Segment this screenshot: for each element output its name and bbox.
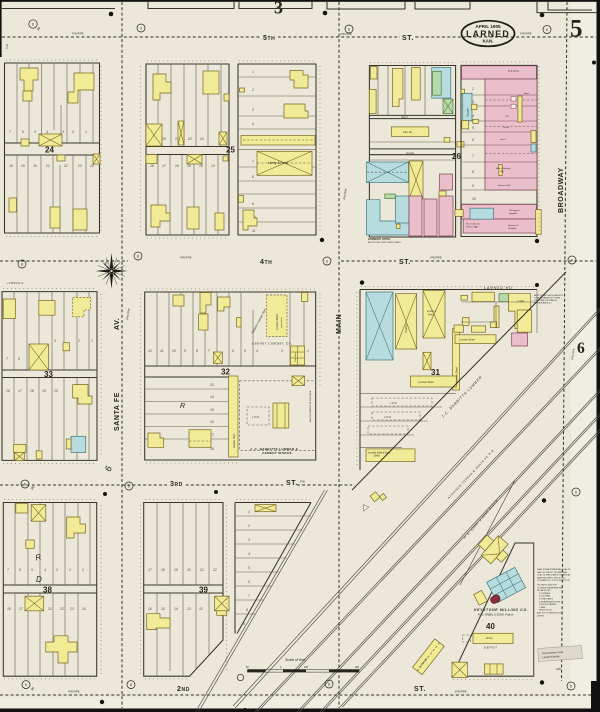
svg-text:6"W: 6"W (300, 480, 305, 484)
svg-text:6: 6 (546, 28, 548, 32)
svg-text:7: 7 (9, 130, 11, 134)
svg-text:2: 2 (251, 88, 254, 92)
svg-text:15: 15 (161, 607, 165, 611)
svg-text:7: 7 (252, 160, 254, 164)
svg-text:4: 4 (256, 349, 258, 353)
svg-text:5TH: 5TH (263, 35, 275, 42)
svg-text:4: 4 (44, 568, 46, 572)
svg-text:3: 3 (281, 349, 283, 353)
svg-text:26: 26 (452, 152, 461, 161)
svg-text:22: 22 (59, 607, 64, 611)
svg-text:2: 2 (68, 568, 71, 572)
svg-text:9: 9 (243, 622, 245, 626)
svg-text:6"W PIPE: 6"W PIPE (520, 32, 532, 36)
svg-text:3: 3 (252, 108, 254, 112)
svg-text:ST.: ST. (402, 35, 414, 42)
svg-text:DEPOT: DEPOT (484, 646, 498, 650)
svg-text:100: 100 (556, 667, 561, 671)
svg-text:8: 8 (246, 608, 248, 612)
svg-text:18: 18 (150, 164, 154, 168)
svg-text:6: 6 (348, 27, 350, 31)
svg-text:40: 40 (486, 622, 495, 631)
svg-text:2 INDEPENDENT HOSE: 2 INDEPENDENT HOSE (539, 601, 561, 603)
svg-text:25: 25 (226, 146, 235, 155)
svg-text:1: 1 (91, 339, 93, 343)
svg-text:15: 15 (210, 408, 214, 412)
svg-text:WHAT STEAM POWER AND COAL OIL: WHAT STEAM POWER AND COAL OIL (537, 568, 571, 571)
svg-text:AVE. 40 FT. STREETS 80 100: AVE. 40 FT. STREETS 80 100 (537, 612, 563, 615)
svg-text:W Ho.: W Ho. (486, 636, 493, 640)
svg-text:4"W PIPE: 4"W PIPE (340, 32, 352, 36)
svg-text:17: 17 (19, 607, 23, 611)
svg-text:AV.: AV. (114, 318, 121, 330)
svg-text:19: 19 (42, 389, 46, 393)
svg-text:5: 5 (248, 566, 250, 570)
svg-text:22: 22 (63, 164, 68, 168)
svg-text:6: 6 (232, 349, 234, 353)
svg-text:KEYSTONE MILLING CO.: KEYSTONE MILLING CO. (474, 608, 528, 612)
svg-text:+ 4"W 10 Fe. P.: + 4"W 10 Fe. P. (7, 282, 24, 285)
svg-text:17: 17 (148, 568, 152, 572)
svg-text:2: 2 (247, 524, 250, 528)
svg-text:1 DOUBLE STEAM FIRE ENG.: 1 DOUBLE STEAM FIRE ENG. (537, 586, 564, 589)
svg-text:2 CISTERNS: 2 CISTERNS (539, 593, 551, 595)
svg-text:COAL OIL WELLS BRICK STEAM GAS: COAL OIL WELLS BRICK STEAM GAS (537, 574, 571, 577)
svg-text:LOTS AVE B & C P ST 20 ROCK ST: LOTS AVE B & C P ST 20 ROCK ST N (537, 579, 570, 582)
svg-text:Vehicle Mfg: Vehicle Mfg (466, 227, 478, 229)
svg-text:Bolts & Bowling: Bolts & Bowling (496, 167, 511, 170)
svg-text:20: 20 (186, 568, 191, 572)
svg-text:L P M: L P M (252, 415, 259, 419)
svg-text:4: 4 (252, 122, 254, 126)
svg-text:5: 5 (34, 130, 36, 134)
svg-text:4"W PIPE: 4"W PIPE (68, 690, 80, 694)
svg-text:3: 3 (472, 100, 474, 104)
svg-text:200: 200 (355, 666, 360, 669)
svg-text:24: 24 (45, 146, 54, 155)
svg-text:14: 14 (174, 607, 178, 611)
svg-text:1: 1 (307, 349, 309, 353)
svg-text:(stone): (stone) (406, 151, 414, 155)
svg-text:O.K & Co.: O.K & Co. (508, 69, 520, 73)
svg-text:10: 10 (172, 349, 176, 353)
svg-text:2ND: 2ND (177, 686, 190, 693)
svg-text:5: 5 (472, 126, 474, 130)
svg-text:GAS FIRE LIMITS: ORD. NO 234: GAS FIRE LIMITS: ORD. NO 234 (537, 576, 565, 579)
svg-text:(barn): (barn) (401, 115, 408, 119)
svg-text:open frame: open frame (281, 316, 283, 328)
svg-text:2: 2 (71, 130, 74, 134)
svg-text:1 HOSE CARTS: 1 HOSE CARTS (539, 598, 554, 601)
svg-text:100: 100 (304, 666, 309, 669)
svg-text:11: 11 (252, 229, 256, 233)
svg-text:L P M: L P M (390, 401, 397, 405)
svg-text:3: 3 (56, 568, 58, 572)
svg-text:Saddlery: Saddlery (508, 228, 518, 230)
svg-text:Lanner Lumber Co.: Lanner Lumber Co. (252, 342, 293, 346)
svg-text:38: 38 (43, 586, 52, 595)
svg-text:ST.: ST. (414, 686, 426, 693)
svg-text:P.O.: P.O. (505, 116, 509, 118)
svg-text:KAN.: KAN. (483, 39, 494, 44)
svg-text:8: 8 (196, 349, 198, 353)
svg-text:BILLON CEMENT BLOCK WKS: BILLON CEMENT BLOCK WKS (310, 390, 312, 422)
svg-text:Trading: Trading (404, 324, 408, 333)
svg-text:1 HOOK & LADDER: 1 HOOK & LADDER (539, 603, 557, 606)
svg-text:20: 20 (32, 164, 37, 168)
svg-text:6: 6 (577, 340, 585, 357)
svg-text:4: 4 (472, 114, 474, 118)
svg-text:17: 17 (162, 164, 166, 168)
svg-text:Carriage &: Carriage & (509, 210, 520, 212)
svg-text:Carr Ho.: Carr Ho. (403, 130, 413, 134)
svg-text:15: 15 (187, 164, 191, 168)
svg-text:21: 21 (47, 607, 52, 611)
svg-text:14: 14 (199, 164, 203, 168)
svg-text:10: 10 (472, 197, 476, 201)
svg-text:8: 8 (328, 682, 330, 686)
svg-text:3 COLUMNS: 3 COLUMNS (539, 596, 551, 598)
svg-text:3: 3 (54, 339, 56, 343)
svg-text:8: 8 (137, 254, 139, 258)
svg-text:4: 4 (46, 130, 48, 134)
svg-text:4: 4 (248, 552, 250, 556)
svg-text:18: 18 (9, 164, 13, 168)
svg-text:32: 32 (221, 368, 230, 377)
svg-text:BEST STOVES LIGHTS SWELL LAMPS: BEST STOVES LIGHTS SWELL LAMPS (368, 241, 401, 244)
svg-text:14: 14 (210, 395, 214, 399)
svg-text:12: 12 (199, 607, 203, 611)
svg-text:23: 23 (199, 137, 204, 141)
svg-text:Horse Shoe &: Horse Shoe & (466, 224, 480, 226)
svg-text:8: 8 (252, 175, 254, 179)
svg-text:11: 11 (160, 349, 164, 353)
svg-text:Shed: Shed (374, 455, 380, 458)
svg-text:5: 5 (31, 568, 33, 572)
svg-text:Lodge: Lodge (517, 299, 525, 303)
svg-text:9: 9 (252, 202, 254, 206)
svg-text:18: 18 (7, 607, 11, 611)
svg-text:BROADWAY: BROADWAY (558, 167, 565, 213)
svg-text:22: 22 (212, 568, 217, 572)
svg-text:5: 5 (244, 349, 246, 353)
svg-text:8: 8 (130, 683, 132, 687)
svg-text:22: 22 (187, 137, 192, 141)
svg-text:CEMENT WORKS.: CEMENT WORKS. (262, 451, 293, 455)
svg-text:Clo &c: Clo &c (503, 127, 510, 129)
svg-text:3: 3 (140, 26, 142, 30)
svg-text:1 TANK: 1 TANK (539, 606, 546, 609)
svg-text:18: 18 (161, 568, 165, 572)
svg-text:13: 13 (211, 164, 215, 168)
svg-text:3RD: 3RD (170, 481, 183, 488)
svg-text:6: 6 (472, 138, 474, 142)
svg-text:Feed: Feed (428, 313, 434, 317)
svg-text:5: 5 (571, 258, 573, 262)
svg-text:5: 5 (570, 684, 572, 688)
svg-text:2: 2 (471, 87, 474, 91)
svg-text:31: 31 (431, 368, 440, 377)
svg-text:8: 8 (575, 490, 577, 494)
svg-text:6: 6 (248, 580, 250, 584)
svg-text:IT'S LIMITS: 2300 POP.: IT'S LIMITS: 2300 POP. (537, 585, 557, 587)
svg-text:9: 9 (472, 184, 474, 188)
svg-text:Lumber Shed: Lumber Shed (275, 314, 279, 330)
svg-text:4"W PIPE: 4"W PIPE (180, 256, 192, 260)
svg-text:23: 23 (69, 607, 74, 611)
svg-text:6: 6 (18, 357, 20, 361)
svg-text:24: 24 (81, 607, 86, 611)
svg-text:8: 8 (21, 262, 23, 266)
svg-text:GAS. OIL & ELECT. NO MATERIAL: GAS. OIL & ELECT. NO MATERIAL (537, 571, 567, 574)
svg-text:23: 23 (77, 164, 82, 168)
svg-text:18: 18 (30, 389, 34, 393)
svg-text:6: 6 (128, 484, 130, 488)
svg-text:16: 16 (6, 389, 10, 393)
svg-text:WELLS GOOD: WELLS GOOD (539, 610, 552, 612)
svg-text:R: R (180, 403, 185, 410)
svg-text:7: 7 (208, 349, 210, 353)
svg-text:7: 7 (7, 568, 9, 572)
svg-text:4"W PIPE: 4"W PIPE (72, 32, 84, 36)
svg-text:7: 7 (472, 154, 474, 158)
svg-text:1: 1 (248, 510, 250, 514)
svg-text:NO FACILITIES: NO FACILITIES (537, 589, 551, 592)
svg-text:7: 7 (248, 594, 250, 598)
svg-text:1: 1 (85, 130, 87, 134)
svg-text:Scale of feet.: Scale of feet. (285, 658, 306, 662)
svg-text:5: 5 (570, 16, 583, 43)
svg-text:Livery & Feed: Livery & Feed (268, 161, 288, 165)
svg-text:H. G. GABEL & SONS. Propr's: H. G. GABEL & SONS. Propr's (478, 613, 514, 617)
svg-text:6"W PIPE: 6"W PIPE (455, 690, 467, 694)
svg-text:2: 2 (77, 339, 80, 343)
svg-text:SANTA FE: SANTA FE (114, 392, 121, 431)
svg-text:16: 16 (175, 164, 179, 168)
svg-text:4"W PIPE: 4"W PIPE (430, 256, 442, 260)
svg-text:24: 24 (89, 164, 94, 168)
svg-text:39: 39 (199, 586, 208, 595)
svg-text:20: 20 (53, 389, 58, 393)
svg-text:4TH: 4TH (260, 259, 272, 266)
svg-text:D: D (36, 575, 42, 584)
svg-text:Livery &: Livery & (427, 309, 437, 313)
svg-text:Gen S.: Gen S. (500, 139, 507, 141)
svg-text:6: 6 (326, 259, 328, 263)
svg-text:L P M: L P M (384, 415, 391, 419)
svg-text:6: 6 (22, 130, 24, 134)
svg-text:1: 1 (82, 568, 84, 572)
svg-text:MAIN: MAIN (336, 314, 343, 334)
svg-text:Supplies: Supplies (509, 213, 518, 215)
svg-text:9: 9 (184, 349, 186, 353)
svg-text:CORNER AVE B & C: CORNER AVE B & C (534, 302, 552, 305)
svg-text:Garage: Garage (466, 108, 470, 117)
svg-text:5: 5 (24, 482, 26, 486)
svg-text:Harness &: Harness & (508, 225, 519, 227)
svg-text:ST.: ST. (399, 259, 411, 266)
svg-text:Lumber Yard: Lumber Yard (233, 434, 236, 448)
svg-text:12: 12 (148, 349, 152, 353)
svg-text:17: 17 (18, 389, 22, 393)
svg-text:Lumber Shed: Lumber Shed (418, 380, 434, 384)
svg-text:6: 6 (25, 683, 27, 687)
svg-text:Lumber Shed: Lumber Shed (459, 338, 475, 342)
svg-text:13: 13 (210, 383, 214, 387)
svg-text:3: 3 (62, 130, 64, 134)
svg-text:8: 8 (472, 170, 474, 174)
svg-text:FARMERS' HOTEL: FARMERS' HOTEL (368, 237, 391, 241)
svg-text:ST.: ST. (286, 480, 298, 487)
svg-text:7: 7 (6, 357, 8, 361)
svg-text:13: 13 (187, 607, 191, 611)
svg-text:16: 16 (210, 420, 214, 424)
svg-text:19: 19 (21, 164, 25, 168)
svg-text:21: 21 (199, 568, 204, 572)
svg-text:6: 6 (19, 568, 21, 572)
svg-text:Coal Shed: Coal Shed (295, 353, 297, 362)
svg-text:LIGHTS.: LIGHTS. (537, 615, 545, 617)
svg-text:LARNED: LARNED (466, 29, 510, 39)
svg-text:1: 1 (252, 70, 254, 74)
svg-text:16: 16 (148, 607, 152, 611)
svg-text:6: 6 (32, 22, 34, 26)
svg-text:21: 21 (45, 164, 50, 168)
svg-text:3: 3 (248, 538, 250, 542)
svg-text:19: 19 (174, 568, 178, 572)
svg-text:Harness Hall: Harness Hall (498, 184, 510, 187)
